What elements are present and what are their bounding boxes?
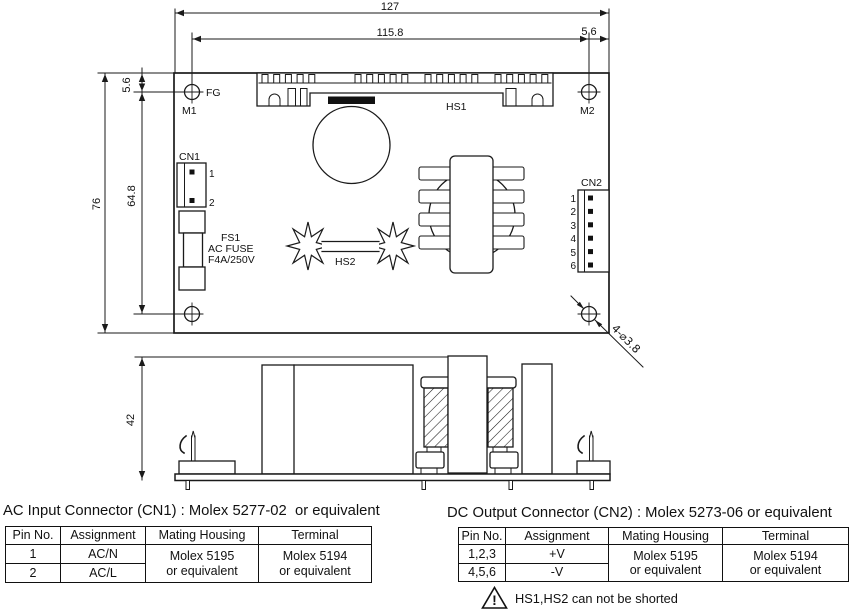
ac-input-connector-table: Pin No. Assignment Mating Housing Termin… <box>5 526 372 583</box>
cell-mating-housing: Molex 5195 or equivalent <box>609 545 723 582</box>
col-header-mating-housing: Mating Housing <box>146 527 259 545</box>
cell-assignment: -V <box>506 564 609 582</box>
cn2-pin-label: 4 <box>570 234 576 245</box>
cn2-pin-label: 1 <box>570 194 576 205</box>
label-fuse-rating: F4A/250V <box>208 254 255 266</box>
cn2-pin-label: 5 <box>570 248 576 259</box>
cn2-pin-label: 3 <box>570 221 576 232</box>
cell-pin: 1 <box>6 545 61 564</box>
label-m1: M1 <box>182 105 197 117</box>
table-header-row: Pin No. Assignment Mating Housing Termin… <box>459 528 849 545</box>
dim-top-offset: 5.6 <box>121 77 133 92</box>
mounting-clip-left <box>179 431 235 474</box>
cell-mating-housing: Molex 5195 or equivalent <box>146 545 259 583</box>
warning-note: ! HS1,HS2 can not be shorted <box>481 586 678 610</box>
col-header-pin-no: Pin No. <box>6 527 61 545</box>
pcb-outline-side-view <box>175 474 610 481</box>
mating-housing-line2: or equivalent <box>609 563 722 577</box>
label-m2: M2 <box>580 105 595 117</box>
dim-overall-height: 76 <box>91 198 103 210</box>
cell-pin: 2 <box>6 564 61 583</box>
dim-side-height: 42 <box>125 414 137 426</box>
col-header-terminal: Terminal <box>259 527 372 545</box>
cn2-pin-label: 2 <box>570 207 576 218</box>
mating-housing-line1: Molex 5195 <box>146 549 258 563</box>
label-hs2: HS2 <box>335 256 356 268</box>
pcb-mechanical-drawing: HS1 CN1 1 2 FS1 AC FUSE F4A/250V <box>0 0 857 500</box>
label-cn1: CN1 <box>179 151 200 163</box>
mounting-clip-right <box>577 431 610 474</box>
pcb-outline-top-view <box>174 73 609 333</box>
cell-assignment: AC/N <box>61 545 146 564</box>
cn2-pin-label: 6 <box>570 261 576 272</box>
mechanical-drawing-page: HS1 CN1 1 2 FS1 AC FUSE F4A/250V <box>0 0 857 613</box>
cell-terminal: Molex 5194 or equivalent <box>259 545 372 583</box>
table-header-row: Pin No. Assignment Mating Housing Termin… <box>6 527 372 545</box>
col-header-terminal: Terminal <box>723 528 849 545</box>
transformer-side-view <box>416 356 518 474</box>
dc-output-table-title: DC Output Connector (CN2) : Molex 5273-0… <box>447 505 832 521</box>
mating-housing-line2: or equivalent <box>146 564 258 578</box>
col-header-assignment: Assignment <box>61 527 146 545</box>
terminal-line2: or equivalent <box>723 563 848 577</box>
terminal-line2: or equivalent <box>259 564 371 578</box>
table-row: 1 AC/N Molex 5195 or equivalent Molex 51… <box>6 545 372 564</box>
dimension-side-height: 42 <box>125 357 145 480</box>
cell-pin: 1,2,3 <box>459 545 506 564</box>
cell-assignment: AC/L <box>61 564 146 583</box>
label-fg: FG <box>206 87 221 99</box>
ac-input-table-title: AC Input Connector (CN1) : Molex 5277-02… <box>3 503 380 519</box>
dim-right-offset: 5.6 <box>581 26 596 38</box>
warning-text: HS1,HS2 can not be shorted <box>515 591 678 606</box>
cn1-pin-label: 2 <box>209 198 215 209</box>
col-header-assignment: Assignment <box>506 528 609 545</box>
cell-pin: 4,5,6 <box>459 564 506 582</box>
mating-housing-line1: Molex 5195 <box>609 549 722 563</box>
dim-inner-width: 115.8 <box>377 27 404 39</box>
col-header-mating-housing: Mating Housing <box>609 528 723 545</box>
table-row: 1,2,3 +V Molex 5195 or equivalent Molex … <box>459 545 849 564</box>
cn1-pin-label: 1 <box>209 169 215 180</box>
warning-triangle-icon: ! <box>481 586 508 610</box>
col-header-pin-no: Pin No. <box>459 528 506 545</box>
warning-exclamation-glyph: ! <box>492 592 497 608</box>
label-hs1: HS1 <box>446 101 467 113</box>
side-view: 42 <box>125 356 610 490</box>
label-cn2: CN2 <box>581 177 602 189</box>
terminal-line1: Molex 5194 <box>259 549 371 563</box>
cell-assignment: +V <box>506 545 609 564</box>
dim-inner-height: 64.8 <box>126 185 138 206</box>
cell-terminal: Molex 5194 or equivalent <box>723 545 849 582</box>
dc-output-connector-table: Pin No. Assignment Mating Housing Termin… <box>458 527 849 582</box>
terminal-line1: Molex 5194 <box>723 549 848 563</box>
dim-overall-width: 127 <box>381 1 399 13</box>
